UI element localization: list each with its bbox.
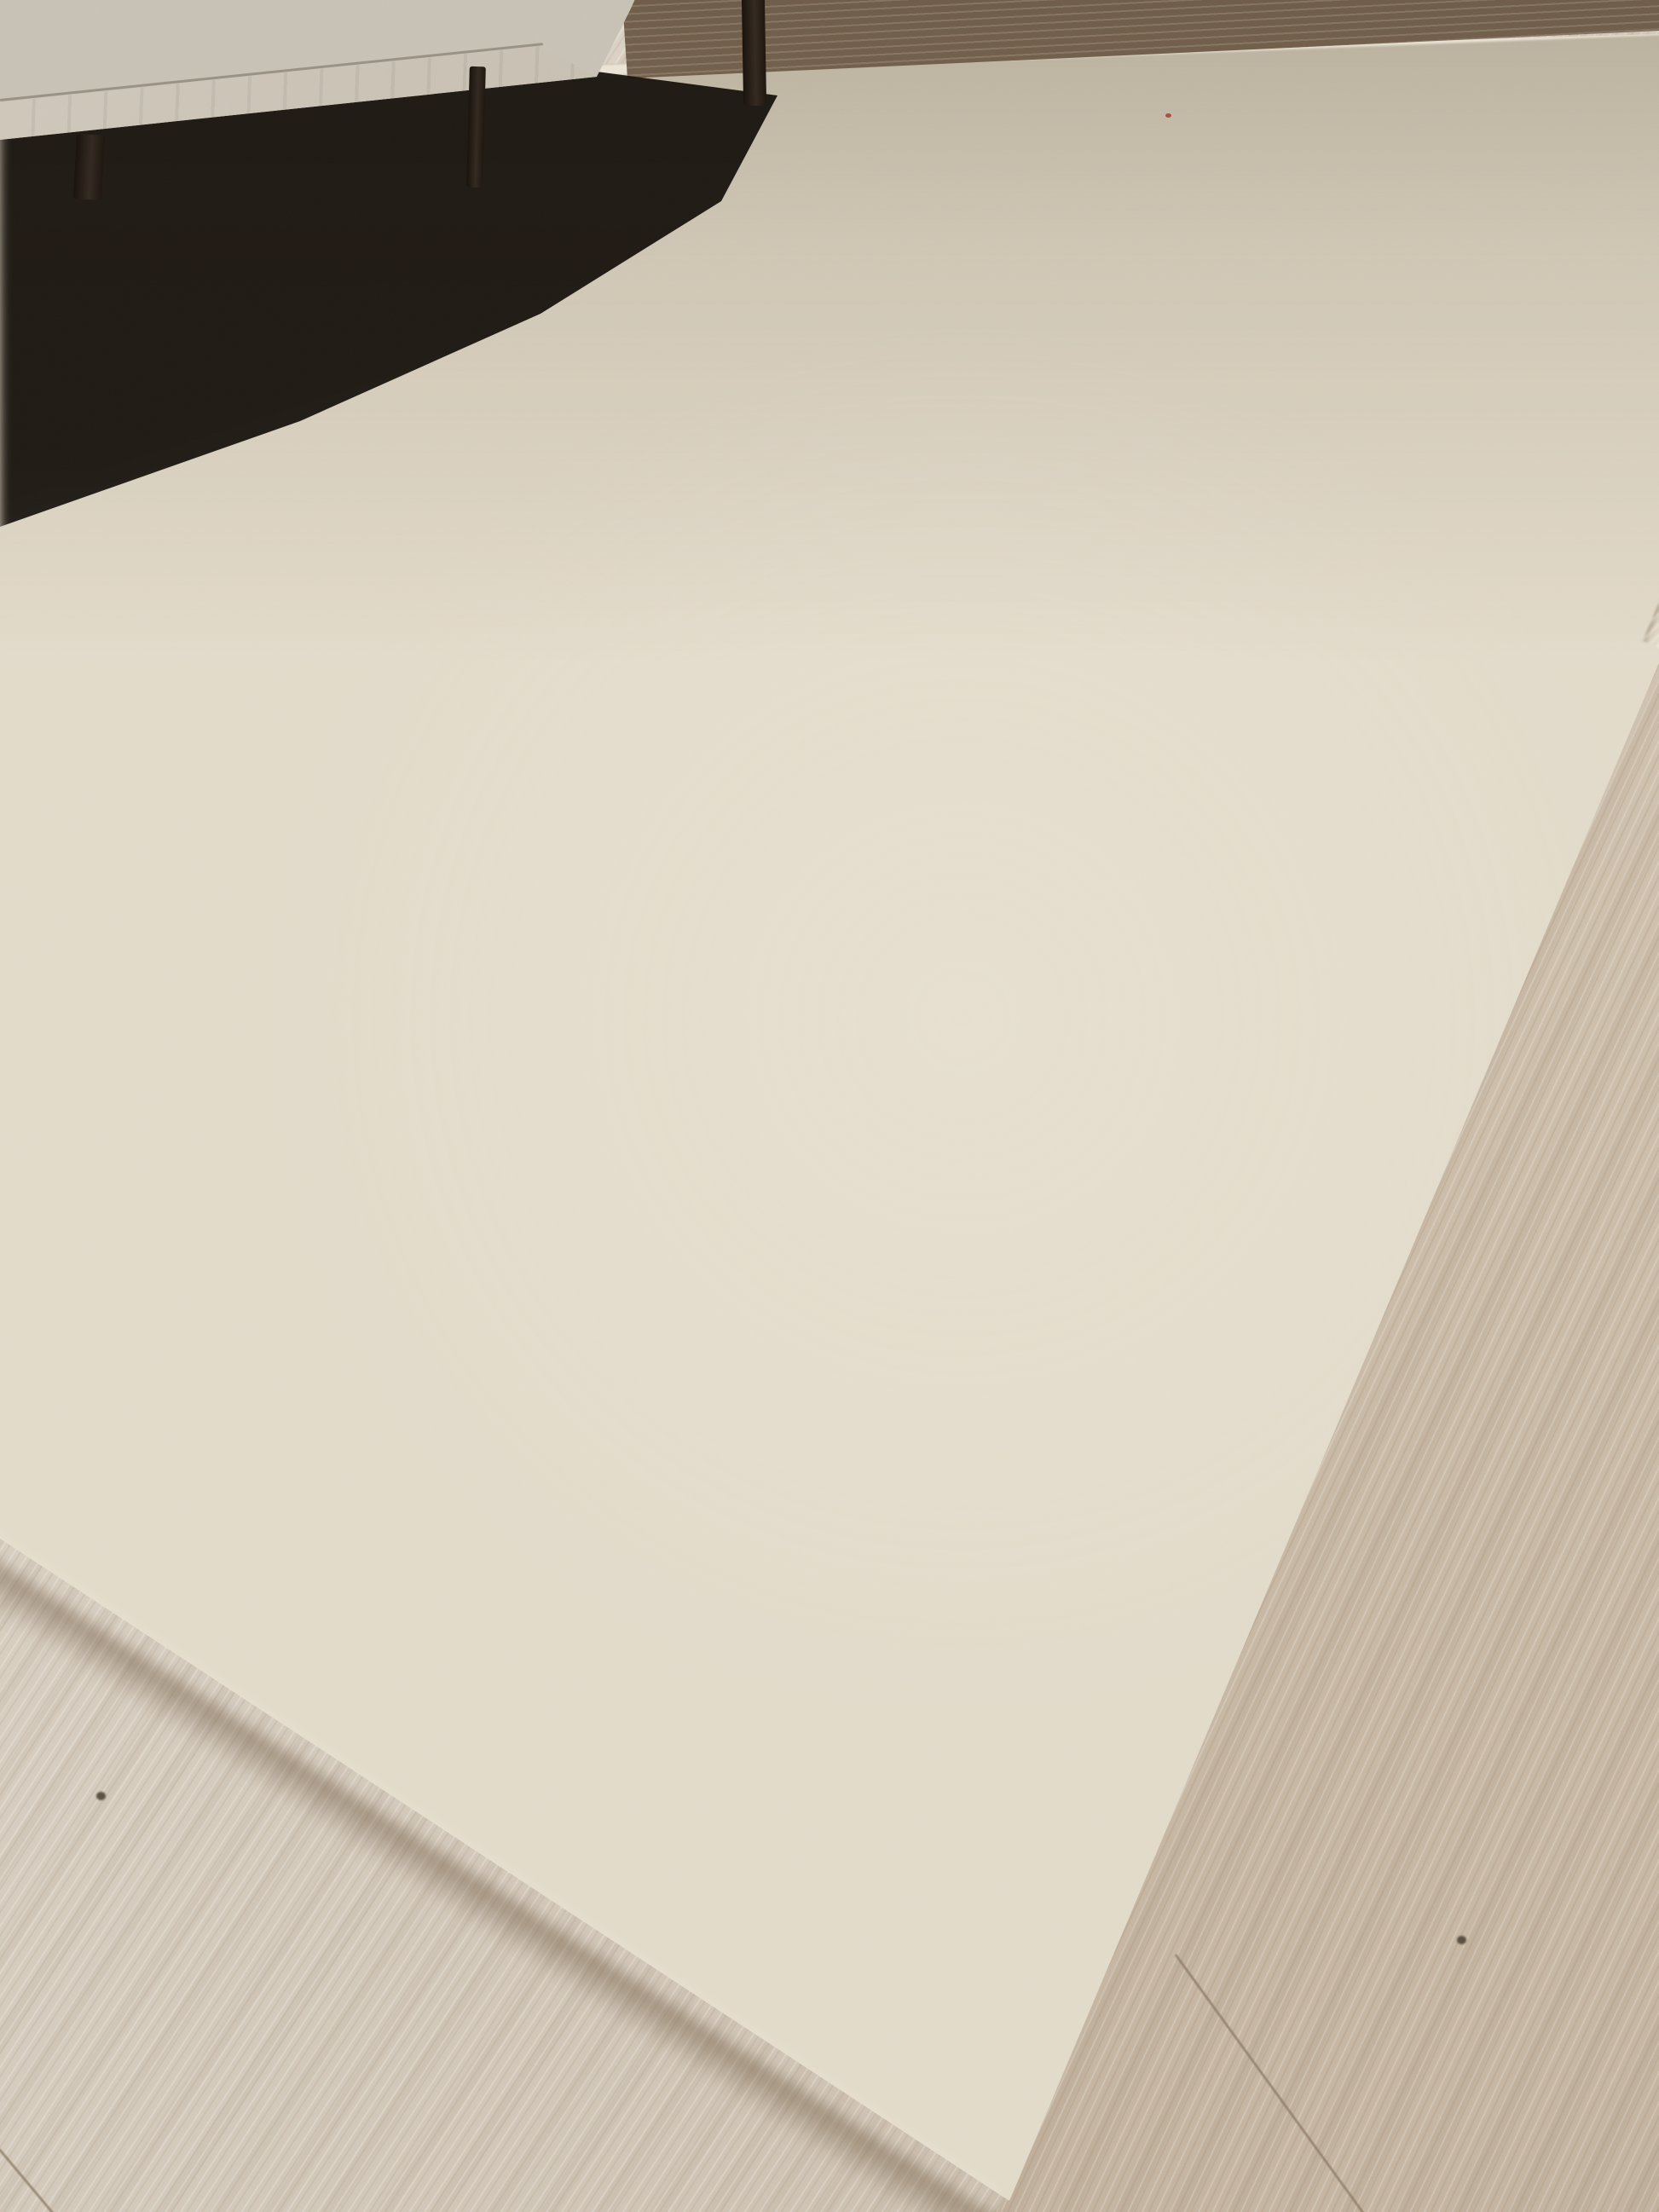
sofa-leg [742,0,766,106]
floor-speck [1457,1936,1466,1944]
floor-speck [96,1792,106,1800]
living-room-photo [0,0,1659,2212]
red-fiber-fleck [1165,113,1171,118]
sofa-leg [466,66,486,188]
sofa-leg [73,134,105,200]
